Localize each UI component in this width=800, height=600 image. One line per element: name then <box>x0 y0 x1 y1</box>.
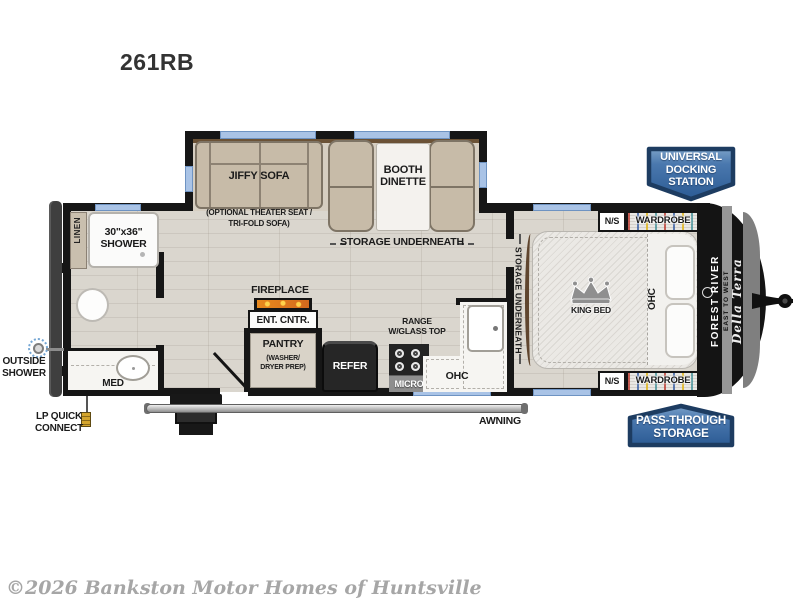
outside-shower-head <box>33 343 44 354</box>
hitch <box>752 285 794 317</box>
dinette-label: BOOTH DINETTE <box>374 164 432 188</box>
outside-shower-pipe <box>46 348 64 351</box>
faucet <box>493 326 498 331</box>
med-counter: MED <box>68 348 158 390</box>
burner <box>395 349 404 358</box>
linen-label: LINEN <box>73 217 82 244</box>
shower-drain <box>140 252 145 257</box>
bed-storage-label: STORAGE UNDERNEATH <box>513 246 523 354</box>
pillow <box>665 303 695 358</box>
nightstand: N/S <box>598 211 626 232</box>
crown-icon <box>567 277 615 305</box>
range-label: RANGE W/GLASS TOP <box>386 316 448 336</box>
dash-decor <box>519 234 521 244</box>
entry-steps <box>179 424 213 435</box>
shower: 30"x36" SHOWER <box>88 212 159 268</box>
ent-center-label: ENT. CNTR. <box>250 315 316 326</box>
sink-drain <box>132 367 135 370</box>
outside-shower-label: OUTSIDE SHOWER <box>0 356 48 379</box>
page-title: 261RB <box>120 50 194 76</box>
pantry-note: (WASHER/ DRYER PREP) <box>251 354 315 372</box>
nightstand-label: N/S <box>600 216 624 226</box>
pass-through-storage-badge: PASS-THROUGH STORAGE <box>625 402 737 450</box>
kitchen-sink <box>467 305 504 352</box>
refrigerator: REFER <box>322 341 378 392</box>
awning-label: AWNING <box>468 416 532 428</box>
brand-series: EAST TO WEST <box>723 211 730 391</box>
universal-docking-station-badge: UNIVERSAL DOCKING STATION <box>643 145 739 203</box>
watermark: ©2026 Bankston Motor Homes of Huntsville <box>6 577 482 599</box>
wardrobe: WARDROBE <box>626 371 700 392</box>
window <box>533 204 591 211</box>
sofa-option-note: (OPTIONAL THEATER SEAT / TRI-FOLD SOFA) <box>187 208 331 229</box>
toilet <box>76 288 109 322</box>
window <box>95 204 141 211</box>
fireplace-flames <box>257 300 309 308</box>
pantry-label: PANTRY <box>251 339 315 351</box>
window <box>479 162 487 188</box>
window <box>533 389 591 396</box>
burner <box>411 349 420 358</box>
linen-cabinet: LINEN <box>70 212 87 269</box>
floorplan-page: 261RB LINEN 30"x36" SHOWER <box>0 0 800 600</box>
king-bed: KING BED OHC <box>532 231 698 369</box>
dinette-storage-label: STORAGE UNDERNEATH <box>330 237 474 249</box>
burner <box>395 362 404 371</box>
med-label: MED <box>68 378 158 389</box>
lp-quick-connect-label: LP QUICK CONNECT <box>30 411 88 434</box>
brand-make: FOREST RIVER <box>710 211 721 391</box>
burner <box>411 362 420 371</box>
window <box>354 131 450 139</box>
pillow <box>665 245 695 300</box>
badge-text: UNIVERSAL DOCKING STATION <box>643 151 739 189</box>
dash-decor <box>519 354 521 364</box>
window <box>185 166 193 192</box>
bench-seam <box>330 186 372 188</box>
brand-model: Della Terra <box>731 211 744 391</box>
dinette-bench <box>328 140 374 232</box>
wardrobe: WARDROBE <box>626 211 700 232</box>
kitchen-ohc-label: OHC <box>433 371 481 383</box>
fireplace <box>254 298 312 310</box>
bed-ohc-label: OHC <box>647 284 658 314</box>
shower-label: 30"x36" SHOWER <box>90 227 157 251</box>
awning-rail <box>146 404 527 413</box>
rear-bumper <box>49 201 62 397</box>
wall-bedroom-partition-top <box>506 211 514 239</box>
pantry: PANTRY (WASHER/ DRYER PREP) <box>250 333 316 388</box>
window <box>220 131 316 139</box>
wardrobe-label: WARDROBE <box>628 216 698 227</box>
bench-seam <box>431 186 473 188</box>
sofa-label: JIFFY SOFA <box>197 170 321 182</box>
refer-label: REFER <box>324 361 376 373</box>
awning-endcap <box>521 403 528 414</box>
fireplace-label: FIREPLACE <box>244 285 316 297</box>
dinette-bench <box>429 140 475 232</box>
nightstand: N/S <box>598 371 626 392</box>
badge-text: PASS-THROUGH STORAGE <box>625 415 737 441</box>
nightstand-label: N/S <box>600 376 624 386</box>
wardrobe-label: WARDROBE <box>628 376 698 387</box>
king-bed-label: KING BED <box>558 306 624 316</box>
